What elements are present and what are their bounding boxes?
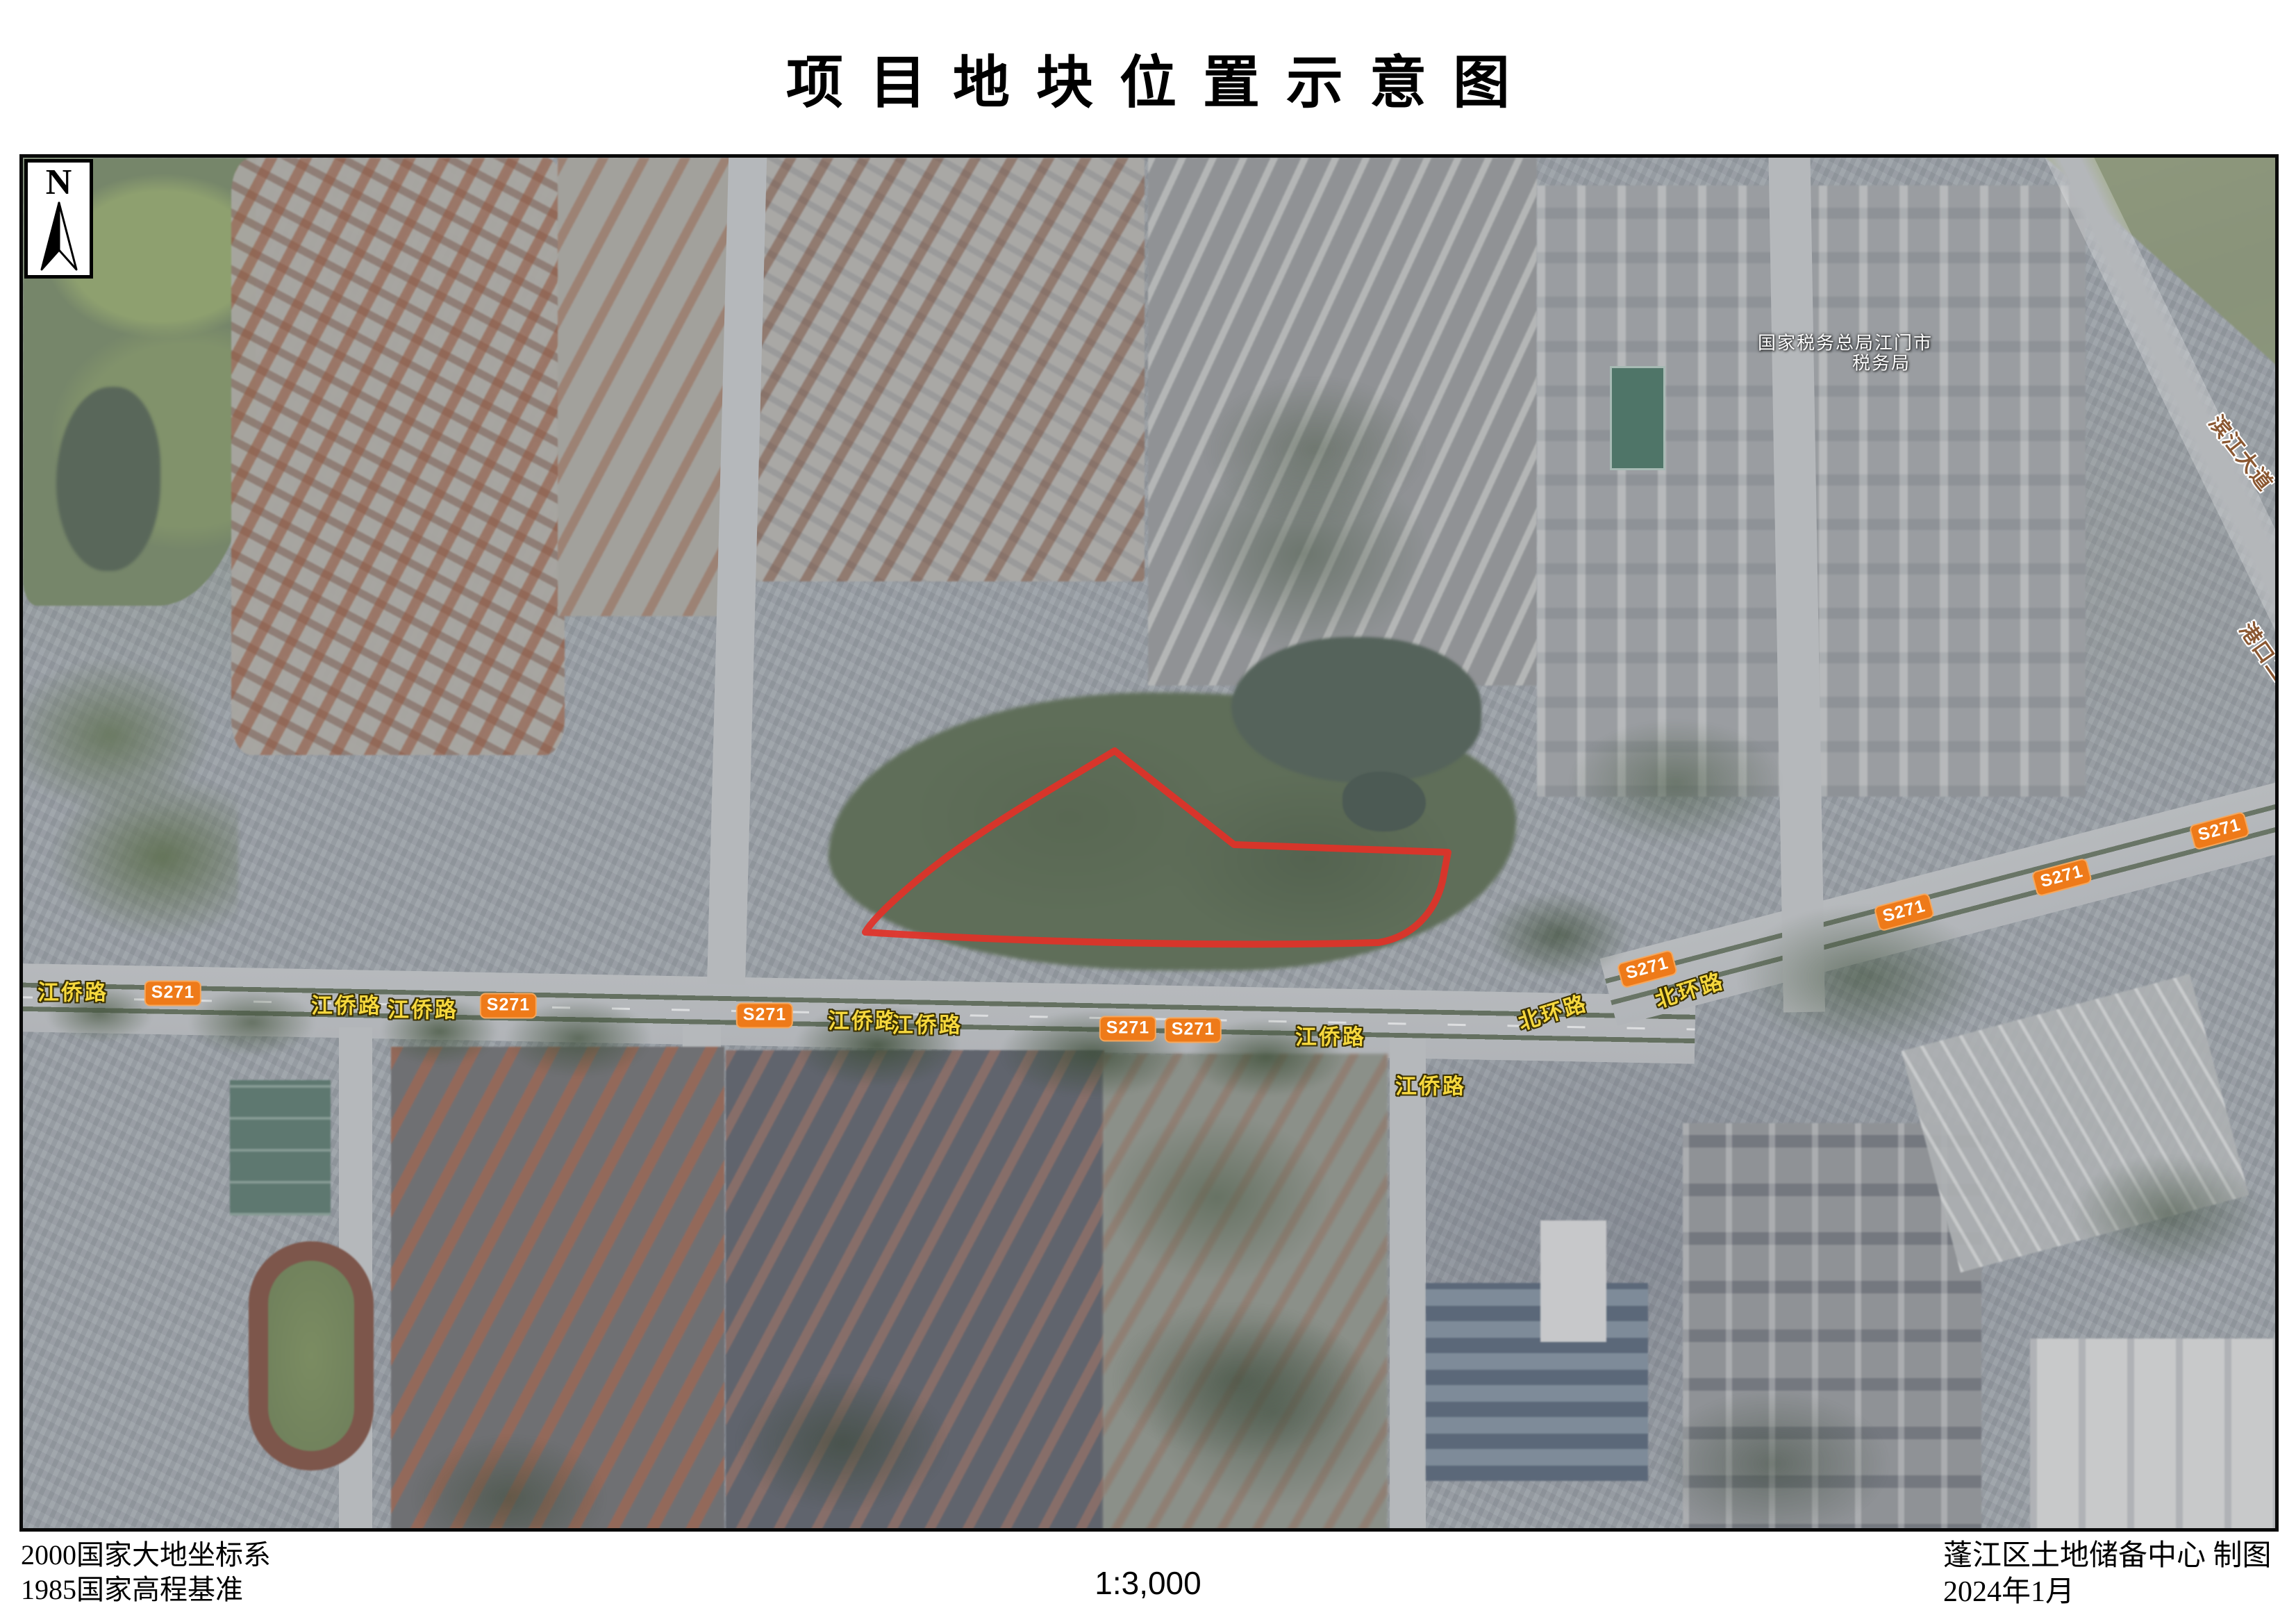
road-label: 江侨路 bbox=[388, 993, 458, 1024]
building bbox=[1540, 1220, 1606, 1342]
map-canvas: N 江侨路江侨路江侨路江侨路江侨路江侨路江侨路北环路北环路S271S271S27… bbox=[19, 154, 2279, 1532]
industrial-buildings bbox=[1426, 1283, 1648, 1481]
page-title: 项目地块位置示意图 bbox=[0, 36, 2296, 119]
page: 项目地块位置示意图 bbox=[0, 0, 2296, 1624]
highway-badge: S271 bbox=[144, 981, 201, 1006]
running-track bbox=[249, 1241, 374, 1470]
road-label: 江侨路 bbox=[1395, 1069, 1466, 1100]
sports-courts bbox=[230, 1080, 331, 1216]
road-label: 江侨路 bbox=[38, 975, 108, 1006]
sports-courts bbox=[1610, 366, 1665, 470]
residential-area bbox=[391, 1047, 724, 1532]
highway-badge: S271 bbox=[480, 993, 537, 1019]
pond bbox=[1342, 772, 1426, 831]
residential-area bbox=[1103, 1054, 1388, 1532]
woodland bbox=[23, 574, 238, 977]
highway-badge: S271 bbox=[1099, 1016, 1156, 1042]
road-label: 江侨路 bbox=[311, 988, 382, 1020]
parking-lot bbox=[1902, 974, 2249, 1273]
north-arrow: N bbox=[24, 159, 93, 279]
credit-line-2: 2024年1月 bbox=[1943, 1574, 2272, 1610]
villa-estate bbox=[231, 158, 565, 755]
road-label: 港口二路 bbox=[2233, 615, 2279, 706]
credit-line-1: 蓬江区土地储备中心 制图 bbox=[1943, 1538, 2272, 1574]
compass-needle-icon bbox=[34, 201, 84, 272]
residential-area bbox=[749, 158, 1145, 581]
highway-badge: S271 bbox=[1165, 1018, 1222, 1043]
road-label: 江侨路 bbox=[828, 1004, 899, 1035]
villa-estate bbox=[558, 158, 745, 616]
residential-area bbox=[726, 1050, 1104, 1532]
residential-area bbox=[1148, 158, 1537, 686]
north-arrow-label: N bbox=[46, 163, 72, 203]
pond bbox=[56, 387, 160, 571]
credit-note: 蓬江区土地储备中心 制图 2024年1月 bbox=[1943, 1538, 2272, 1610]
large-building bbox=[2030, 1339, 2279, 1532]
vertical-road bbox=[1390, 1038, 1426, 1532]
road-label: 江侨路 bbox=[892, 1008, 963, 1039]
road-label: 江侨路 bbox=[1295, 1020, 1366, 1051]
highway-badge: S271 bbox=[736, 1003, 793, 1029]
poi-label: 税务局 bbox=[1852, 349, 1911, 375]
